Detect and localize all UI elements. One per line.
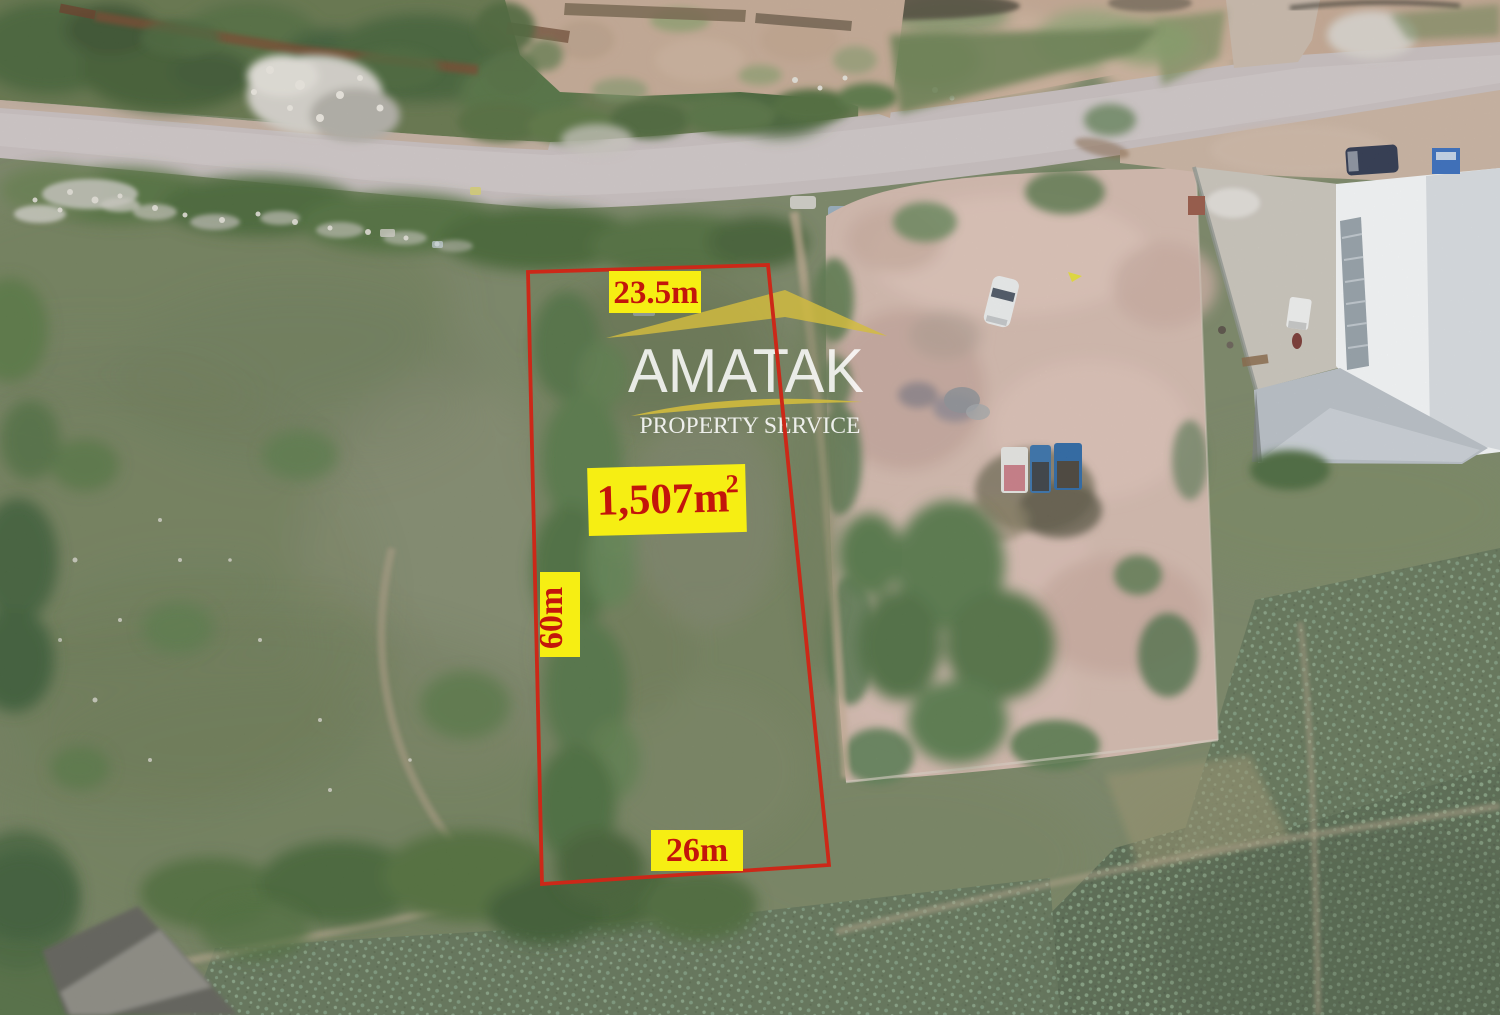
svg-text:60m: 60m (533, 587, 570, 649)
svg-text:2: 2 (725, 469, 739, 498)
svg-text:AMATAK: AMATAK (628, 337, 864, 406)
svg-text:23.5m: 23.5m (613, 275, 698, 311)
svg-text:1,507m: 1,507m (596, 474, 730, 524)
svg-text:26m: 26m (666, 832, 728, 869)
svg-text:PROPERTY SERVICE: PROPERTY SERVICE (640, 413, 861, 438)
